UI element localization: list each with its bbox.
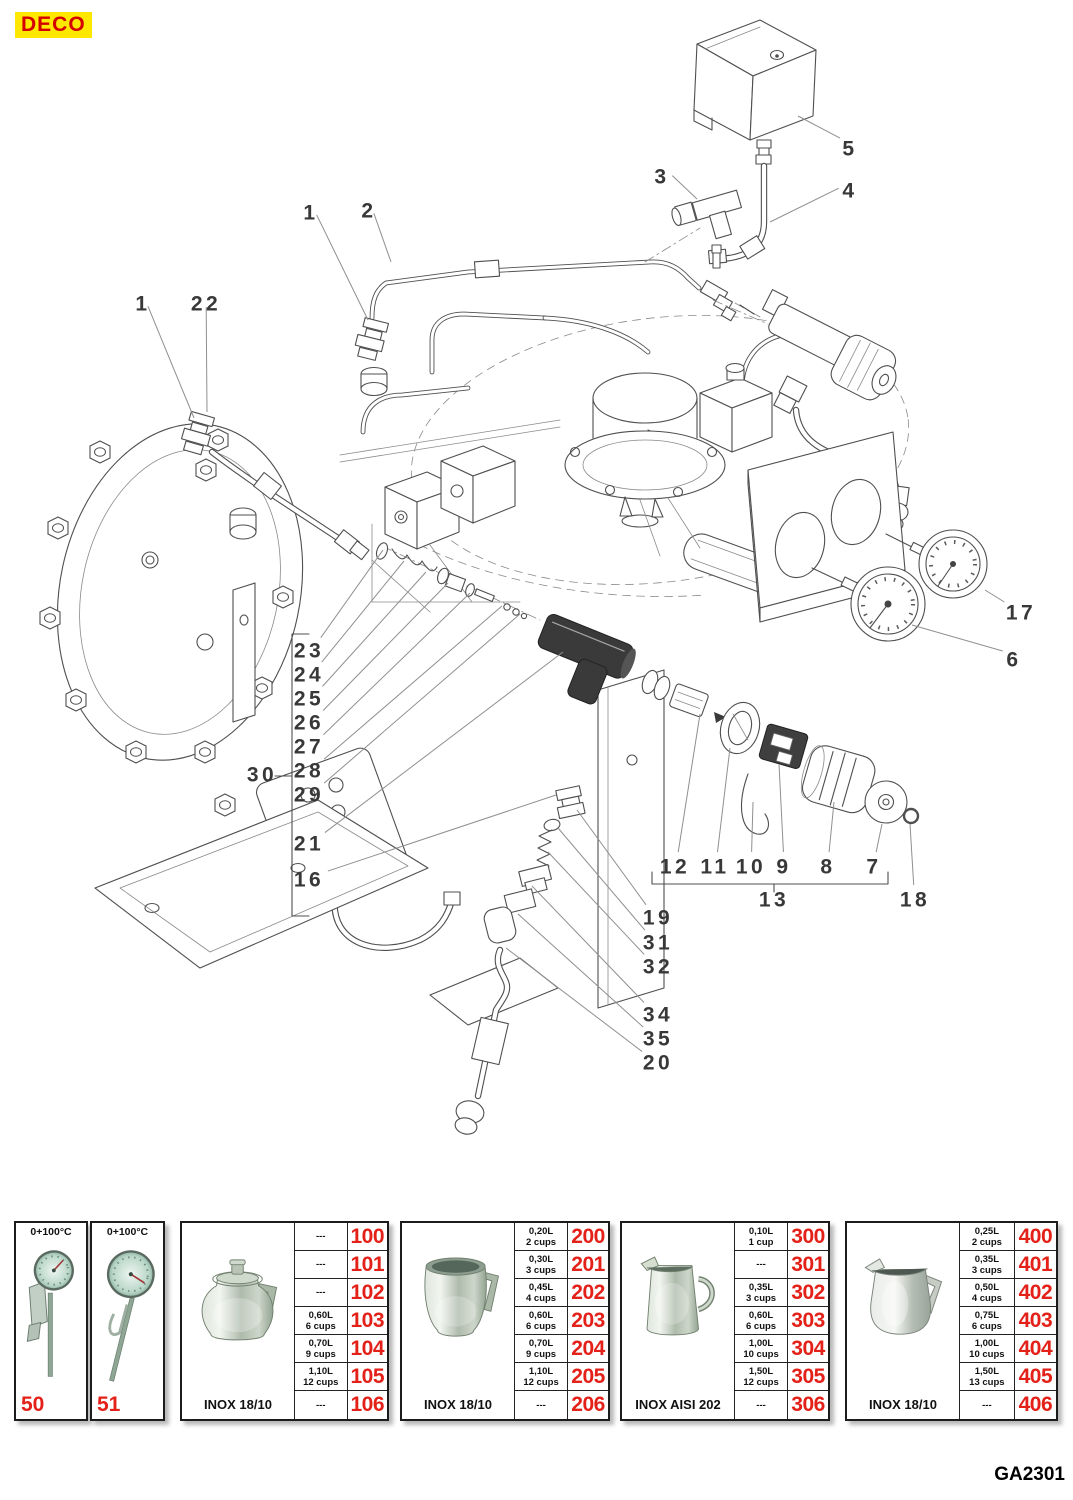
- capacity-cell: 0,30L3 cups: [515, 1251, 568, 1278]
- table-row: 0,50L4 cups402: [960, 1279, 1056, 1307]
- table-row: 0,30L3 cups201: [515, 1251, 608, 1279]
- table-row: 1,50L12 cups305: [735, 1363, 828, 1391]
- jug-panel-400: INOX 18/10 0,25L2 cups400 0,35L3 cups401…: [845, 1221, 1058, 1421]
- part-number-cell: 303: [788, 1307, 828, 1334]
- jug-photo: [853, 1239, 953, 1357]
- part-number-cell: 102: [348, 1279, 387, 1306]
- part-number-cell: 203: [568, 1307, 608, 1334]
- callout-26-12: 26: [294, 712, 324, 735]
- table-row: 1,50L13 cups405: [960, 1363, 1056, 1391]
- capacity-cell: ---: [735, 1391, 788, 1419]
- capacity-cell: 0,35L3 cups: [960, 1251, 1015, 1278]
- jug-panel-100: INOX 18/10 ---100 ---101 ---102 0,60L6 c…: [180, 1221, 389, 1421]
- valve-connector: [758, 723, 808, 769]
- table-row: ---206: [515, 1391, 608, 1419]
- capacity-cell: ---: [295, 1251, 348, 1278]
- callout-34-30: 34: [643, 1004, 673, 1027]
- callout-2-3: 2: [361, 200, 376, 223]
- part-number-cell: 404: [1015, 1335, 1056, 1362]
- capacity-cell: 0,25L2 cups: [960, 1223, 1015, 1250]
- part-number-cell: 402: [1015, 1279, 1056, 1306]
- part-number-cell: 302: [788, 1279, 828, 1306]
- callout-24-10: 24: [294, 664, 324, 687]
- callout-30-16: 30: [247, 764, 277, 787]
- steam-valve-row: [523, 612, 918, 834]
- capacity-cell: ---: [960, 1391, 1015, 1419]
- size-table: ---100 ---101 ---102 0,60L6 cups103 0,70…: [294, 1223, 387, 1419]
- capacity-cell: 1,00L10 cups: [960, 1335, 1015, 1362]
- capacity-cell: 1,00L10 cups: [735, 1335, 788, 1362]
- leader-line-10-21: [752, 802, 753, 852]
- capacity-cell: 1,10L12 cups: [515, 1363, 568, 1390]
- capacity-cell: 1,50L13 cups: [960, 1363, 1015, 1390]
- size-table: 0,10L1 cup300 ---301 0,35L3 cups302 0,60…: [734, 1223, 828, 1419]
- leader-line-1-2: [317, 215, 368, 320]
- table-row: 1,00L10 cups404: [960, 1335, 1056, 1363]
- callout-8-23: 8: [820, 856, 835, 879]
- callout-23-9: 23: [294, 640, 324, 663]
- callout-35-31: 35: [643, 1028, 673, 1051]
- jug-photo-area: INOX 18/10: [182, 1223, 294, 1419]
- leader-line-3-4: [672, 176, 697, 199]
- leader-line-17-7: [985, 590, 1004, 602]
- jug-caption: INOX 18/10: [402, 1397, 514, 1412]
- size-table: 0,20L2 cups200 0,30L3 cups201 0,45L4 cup…: [514, 1223, 608, 1419]
- leader-line-12-19: [678, 714, 700, 852]
- callout-32-29: 32: [643, 956, 673, 979]
- jug-caption: INOX 18/10: [182, 1397, 294, 1412]
- part-number-cell: 306: [788, 1391, 828, 1419]
- leader-line-27-13: [323, 593, 470, 735]
- part-number-cell: 400: [1015, 1223, 1056, 1250]
- callout-9-22: 9: [776, 856, 791, 879]
- table-row: 0,60L6 cups303: [735, 1307, 828, 1335]
- part-number-cell: 300: [788, 1223, 828, 1250]
- leader-line-18-26: [910, 824, 914, 885]
- part-number-cell: 301: [788, 1251, 828, 1278]
- part-number-cell: 206: [568, 1391, 608, 1419]
- callout-28-14: 28: [294, 760, 324, 783]
- exploded-parts-diagram: 1221234517623242526272829302116121110987…: [0, 0, 1073, 1210]
- callout-16-18: 16: [294, 869, 324, 892]
- capacity-cell: 0,20L2 cups: [515, 1223, 568, 1250]
- part-number-cell: 104: [348, 1335, 387, 1362]
- capacity-cell: ---: [295, 1279, 348, 1306]
- callout-7-24: 7: [866, 856, 881, 879]
- solenoid-valves: [372, 446, 520, 612]
- boiler-flange: [27, 401, 332, 783]
- callout-22-1: 22: [191, 293, 221, 316]
- table-row: 0,60L6 cups103: [295, 1307, 387, 1335]
- size-table: 0,25L2 cups400 0,35L3 cups401 0,50L4 cup…: [959, 1223, 1056, 1419]
- table-row: 0,25L2 cups400: [960, 1223, 1056, 1251]
- callout-6-8: 6: [1006, 649, 1021, 672]
- leader-line-9-22: [779, 764, 783, 852]
- table-row: 0,10L1 cup300: [735, 1223, 828, 1251]
- callout-1-0: 1: [135, 293, 150, 316]
- callout-4-5: 4: [842, 180, 857, 203]
- table-row: ---301: [735, 1251, 828, 1279]
- thermometer-panel-50: 0+100°C 50: [14, 1221, 88, 1421]
- part-number-cell: 204: [568, 1335, 608, 1362]
- part-number-cell: 205: [568, 1363, 608, 1390]
- top-pipe-2: [372, 260, 768, 324]
- leader-line-22-1: [206, 307, 207, 412]
- callout-3-4: 3: [654, 166, 669, 189]
- table-row: ---100: [295, 1223, 387, 1251]
- table-row: 0,70L9 cups204: [515, 1335, 608, 1363]
- callout-5-6: 5: [842, 138, 857, 161]
- part-number-cell: 403: [1015, 1307, 1056, 1334]
- table-row: ---406: [960, 1391, 1056, 1419]
- leader-line-6-8: [912, 625, 1003, 651]
- jug-caption: INOX AISI 202: [622, 1397, 734, 1412]
- boiler-fitting-right: [353, 317, 389, 396]
- capacity-cell: 0,70L9 cups: [515, 1335, 568, 1362]
- gland-parts-row: [374, 541, 540, 620]
- part-number: 50: [21, 1393, 44, 1417]
- capacity-cell: 0,70L9 cups: [295, 1335, 348, 1362]
- part-number-cell: 103: [348, 1307, 387, 1334]
- table-row: 1,00L10 cups304: [735, 1335, 828, 1363]
- part-number-cell: 304: [788, 1335, 828, 1362]
- parts-catalog-page: DECO: [0, 0, 1073, 1500]
- jug-photo: [188, 1239, 288, 1357]
- jug-photo-area: INOX 18/10: [847, 1223, 959, 1419]
- callout-17-7: 17: [1006, 602, 1036, 625]
- part-number-cell: 305: [788, 1363, 828, 1390]
- leader-line-1-0: [148, 306, 194, 418]
- leader-line-25-11: [322, 572, 426, 686]
- jug-panel-200: INOX 18/10 0,20L2 cups200 0,30L3 cups201…: [400, 1221, 610, 1421]
- table-row: 1,10L12 cups105: [295, 1363, 387, 1391]
- part-number-cell: 406: [1015, 1391, 1056, 1419]
- table-row: 0,45L4 cups202: [515, 1279, 608, 1307]
- table-row: 0,70L9 cups104: [295, 1335, 387, 1363]
- capacity-cell: 1,50L12 cups: [735, 1363, 788, 1390]
- leader-line-5-6: [798, 116, 840, 138]
- callout-20-32: 20: [643, 1052, 673, 1075]
- table-row: 0,75L6 cups403: [960, 1307, 1056, 1335]
- jug-photo: [628, 1239, 728, 1357]
- capacity-cell: 0,60L6 cups: [735, 1307, 788, 1334]
- capacity-cell: ---: [735, 1251, 788, 1278]
- capacity-cell: 0,75L6 cups: [960, 1307, 1015, 1334]
- table-row: ---101: [295, 1251, 387, 1279]
- table-row: ---106: [295, 1391, 387, 1419]
- part-number-cell: 201: [568, 1251, 608, 1278]
- callout-1-2: 1: [303, 202, 318, 225]
- jug-panel-300: INOX AISI 202 0,10L1 cup300 ---301 0,35L…: [620, 1221, 830, 1421]
- jug-photo-area: INOX 18/10: [402, 1223, 514, 1419]
- range-label: 0+100°C: [16, 1226, 86, 1238]
- part-number-cell: 101: [348, 1251, 387, 1278]
- part-number-cell: 405: [1015, 1363, 1056, 1390]
- callout-19-27: 19: [643, 907, 673, 930]
- capacity-cell: 0,45L4 cups: [515, 1279, 568, 1306]
- table-row: 0,60L6 cups203: [515, 1307, 608, 1335]
- callout-25-11: 25: [294, 688, 324, 711]
- leader-line-4-5: [770, 188, 839, 222]
- table-row: ---102: [295, 1279, 387, 1307]
- capacity-cell: ---: [515, 1391, 568, 1419]
- table-row: 0,35L3 cups302: [735, 1279, 828, 1307]
- jug-caption: INOX 18/10: [847, 1397, 959, 1412]
- jug-photo: [408, 1239, 508, 1357]
- capacity-cell: ---: [295, 1391, 348, 1419]
- part-number: 51: [97, 1393, 120, 1417]
- callout-27-13: 27: [294, 736, 324, 759]
- callout-18-26: 18: [900, 889, 930, 912]
- part-number-cell: 106: [348, 1391, 387, 1419]
- callout-13-25: 13: [759, 889, 789, 912]
- capacity-cell: 0,60L6 cups: [515, 1307, 568, 1334]
- leader-line-8-23: [829, 802, 834, 852]
- part-number-cell: 401: [1015, 1251, 1056, 1278]
- callout-10-21: 10: [736, 856, 766, 879]
- pipe-end-fitting: [695, 280, 742, 320]
- capacity-cell: 0,50L4 cups: [960, 1279, 1015, 1306]
- leader-line-24-10: [322, 561, 404, 662]
- capacity-cell: 0,10L1 cup: [735, 1223, 788, 1250]
- range-label: 0+100°C: [92, 1226, 163, 1238]
- jug-photo-area: INOX AISI 202: [622, 1223, 734, 1419]
- callout-21-17: 21: [294, 833, 324, 856]
- thermometer-photo: [93, 1238, 163, 1388]
- capacity-cell: 0,60L6 cups: [295, 1307, 348, 1334]
- leader-line-7-24: [876, 824, 882, 852]
- leader-line-11-20: [717, 748, 730, 852]
- callout-12-19: 12: [660, 856, 690, 879]
- pressure-switch: [694, 20, 816, 164]
- callout-29-15: 29: [294, 784, 324, 807]
- table-row: ---306: [735, 1391, 828, 1419]
- table-row: 0,35L3 cups401: [960, 1251, 1056, 1279]
- catalog-code: GA2301: [994, 1464, 1065, 1486]
- part-number-cell: 202: [568, 1279, 608, 1306]
- capacity-cell: 1,10L12 cups: [295, 1363, 348, 1390]
- thermometer-photo: [16, 1238, 86, 1388]
- callout-11-20: 11: [700, 856, 729, 879]
- solenoid-right: [700, 364, 772, 453]
- part-number-cell: 200: [568, 1223, 608, 1250]
- table-row: 1,10L12 cups205: [515, 1363, 608, 1391]
- part-number-cell: 100: [348, 1223, 387, 1250]
- capacity-cell: ---: [295, 1223, 348, 1250]
- part-number-cell: 105: [348, 1363, 387, 1390]
- table-row: 0,20L2 cups200: [515, 1223, 608, 1251]
- thermometer-panel-51: 0+100°C 51: [90, 1221, 165, 1421]
- capacity-cell: 0,35L3 cups: [735, 1279, 788, 1306]
- callout-31-28: 31: [643, 932, 673, 955]
